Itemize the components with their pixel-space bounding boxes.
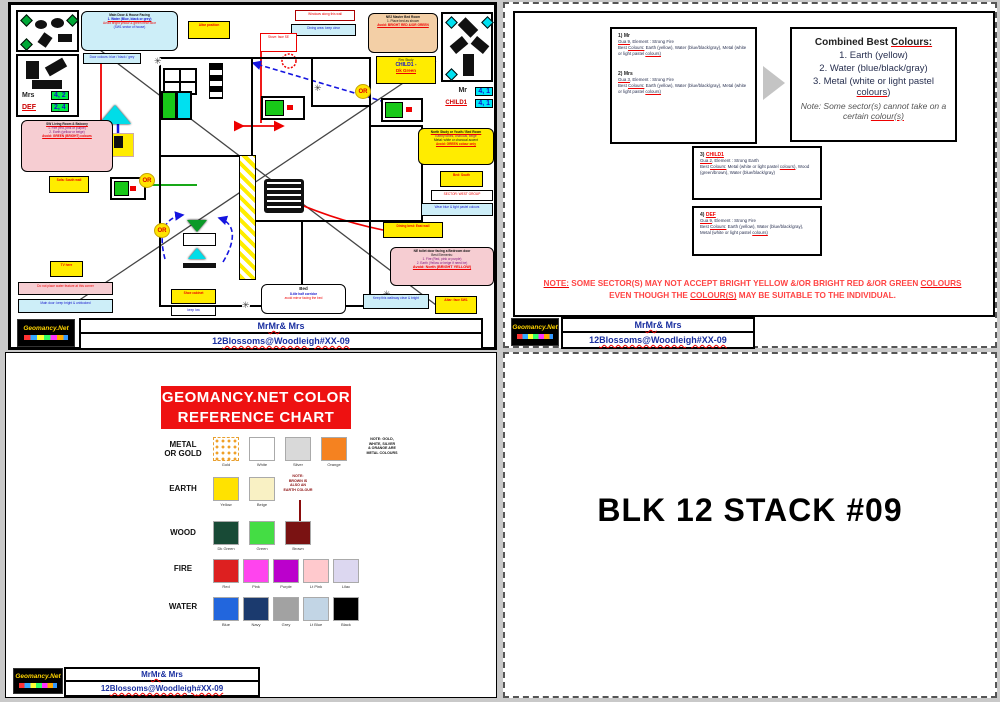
swatch-color [213,477,239,501]
gua-text: , Element : Strong Fire [712,218,756,223]
callout-master-bedroom: NE2 Master Bed Room 1. Place bed as show… [368,13,438,53]
callout-line: Altar position [190,23,228,27]
compass-diamond-icon [20,38,33,51]
swatch-color [285,521,311,545]
swatch: Silver [285,437,311,467]
callout-altar-sw: Altar: face SW1 [435,296,477,314]
geomancy-logo: Geomancy.Net [17,319,75,347]
note-text: MAY BE SUITABLE TO THE INDIVIDUAL. [737,291,896,300]
occupant-box-topright: Mr 4, 1 CHILD1 4, 1 [441,87,493,113]
compass-diamond-icon [445,16,458,29]
swatch-color [213,437,239,461]
logo-color-bar [24,335,69,340]
swatch-label: Lilac [342,584,350,589]
gua-text: , Element : Strong Fire [630,77,674,82]
callout-line: SECTOR: WEST GROUP [433,192,491,196]
callout-door-colours: Door colours: blue / black / grey [83,53,141,64]
callout-main-door-bright: Main door: keep bright & unblocked [18,299,113,313]
swatch: Lt Blue [303,597,329,627]
body-text: Metal (white or light pastel [726,164,779,169]
callout-line: Shoe cabinet [173,291,214,295]
callout-line: Avoid: North (BRIGHT YELLOW) [392,265,492,270]
swatch: Green [249,521,275,551]
swatch-row-metal: Gold White Silver Orange [213,437,347,467]
staircase-hatch [239,155,256,280]
threshold-bar [183,263,216,268]
body-text: colours) [645,89,661,94]
footer-text: 12 [589,335,599,345]
gua-text: Gua 9 [700,218,712,223]
gua-text: , Element : Strong Fire [630,39,674,44]
occupant-name: CHILD1 [445,100,467,106]
swatch-label: Red [222,584,229,589]
footer-address-box: Mr Mr & Mrs 12 Blossoms@Woodleigh #XX-09 [79,318,483,350]
callout-stove: Stove: face SE [260,33,297,52]
callout-line: keep low [173,308,214,312]
row-label-fire: FIRE [158,565,208,574]
logo-color-bar [19,683,57,688]
callout-line: Door colours: blue / black / grey [85,55,139,59]
swatch-color [285,437,311,461]
swatch-label: Black [341,622,351,627]
callout-main-door: Main Door & House Facing 1. Water (Blue,… [81,11,178,51]
compass-diamond-icon [66,14,79,27]
compass-diamond-icon [20,14,33,27]
callout-line: Do not place water feature at this corne… [20,284,111,288]
swatch-label: Lt Pink [310,584,322,589]
footer-text: & Mrs [656,320,681,330]
footer-text: #XX-09 [320,336,350,346]
kua-number-badge: 4, 1 [475,87,493,96]
body-text: colours) [752,230,768,235]
kua-number-badge: 4, 2 [51,91,69,100]
wall [369,125,423,127]
callout-line: Dining best: East wall [385,224,441,228]
sector-warning-note: NOTE: SOME SECTOR(S) MAY NOT ACCEPT BRIG… [530,278,975,303]
door-swing-icon: ✳ [154,57,162,66]
callout-wear-colours: Wear blue & light pastel colours [421,203,493,216]
body-text: colours) [645,51,661,56]
swatch: Navy [243,597,269,627]
callout-line: Altar: face SW1 [437,298,475,302]
swatch: Blue [213,597,239,627]
landing-box [183,233,216,246]
swatch-label: Blue [222,622,230,627]
geomancy-logo: Geomancy.Net [13,668,63,694]
combined-note: colour(s) [871,111,904,121]
fridge-icon [161,91,177,120]
footer-text: & Mrs [161,670,183,679]
geomancy-logo: Geomancy.Net [511,318,559,346]
callout-north-study: North Study or Youth / Bed Room Earthy t… [418,128,494,165]
best-colours-page: 1) Mr Gua 9, Element : Strong Fire Best … [503,2,997,348]
swatch-color [333,559,359,583]
callout-bed-corridor: Bed 8-tile half corridor avoid mirror fa… [261,284,346,314]
or-badge: OR [139,173,155,188]
gua-text: Gua 9 [618,39,630,44]
swatch: Gold [213,437,239,467]
person-box-def: 4) DEF Gua 9, Element : Strong Fire Best… [692,206,822,256]
footer-address-row: 12 Blossoms@Woodleigh #XX-09 [81,334,481,348]
wall [311,57,313,107]
wall [159,57,371,59]
kua-number-badge: 2, 4 [51,103,69,112]
callout-tv: TV here [50,261,83,277]
callout-line: Avoid: GREEN colour only [420,142,492,146]
body-text: Best [700,164,710,169]
footer-text: 12 [101,684,110,693]
wall [251,220,371,222]
swatch-label: Gold [222,462,230,467]
callout-line: Dk Green [378,68,434,74]
footer-text: Mr [151,670,161,679]
footer-address-row: 12 Blossoms@Woodleigh #XX-09 [563,333,753,347]
logo-color-bar [517,334,554,339]
swatch: Pink [243,559,269,589]
body-text: Best [618,45,628,50]
occupant-name: Mrs [22,92,34,99]
swatch: Black [333,597,359,627]
color-chart-page: GEOMANCY.NET COLOR REFERENCE CHART METAL… [5,352,497,698]
swatch-row-water: Blue Navy Grey Lt Blue Black [213,597,359,627]
swatch-color [273,559,299,583]
callout-line: avoid mirror facing the bed [263,296,344,300]
kua-number-badge: 4, 1 [475,99,493,108]
callout-line: TV here [52,263,81,267]
callout-altar: Altar position [188,21,230,39]
swatch-color [243,559,269,583]
swatch-label: Green [256,546,267,551]
dining-table-icon [264,179,304,213]
callout-line: Keep this walkway clear & bright [365,296,427,300]
compass-box-topright [441,12,493,82]
body-text: Colours: [628,45,644,50]
furniture-glyph [37,32,52,48]
swatch: Red [213,559,239,589]
callout-line: Avoid: BRIGHT RED &/OR GREEN [370,23,436,27]
callout-walkway: Keep this walkway clear & bright [363,294,429,309]
row-label-wood: WOOD [158,529,208,538]
swatch-color [213,521,239,545]
footer-text: Mr [141,670,151,679]
footer-address-box: Mr Mr & Mrs 12 Blossoms@Woodleigh #XX-09 [561,317,755,349]
combined-title: Colours: [891,37,932,48]
footer-address-box: Mr Mr & Mrs 12 Blossoms@Woodleigh #XX-09 [64,667,260,697]
swatch: Grey [273,597,299,627]
swatch-label: Grey [282,622,291,627]
furniture-glyph [26,61,39,79]
furniture-glyph [458,17,479,38]
footer-text: #XX-09 [197,684,224,693]
body-text: Colours: [710,224,726,229]
swatch-label: Navy [251,622,260,627]
callout-line: Bed: South [442,173,481,177]
combined-item: 1. Earth (yellow) [796,50,951,61]
row-label-earth: EARTH [158,485,208,494]
furniture-glyph [58,34,72,42]
furniture-glyph [463,54,474,76]
callout-line: Main door: keep bright & unblocked [20,301,111,305]
swatch: Brown [285,521,311,551]
furniture-glyph [471,36,490,54]
footer-name-row: Mr Mr & Mrs [81,320,481,334]
swatch: White [249,437,275,467]
wall [251,57,253,157]
callout-ne-toilet: NE toilet door facing a Bedroom door Bes… [390,247,494,286]
combined-item: 3. Metal (white or light pastel [813,76,934,87]
callout-dining: Dining area: keep clear [291,24,356,36]
callout-line: Wear blue & light pastel colours [423,205,491,209]
callout-keep-low: keep low [171,306,216,316]
callout-bed-south: Bed: South [440,171,483,187]
bed-icon [381,98,423,122]
door-swing-icon: ✳ [314,84,322,93]
swatch-color [303,559,329,583]
swatch-label: White [257,462,267,467]
swatch-color [249,521,275,545]
furniture-glyph [45,58,67,77]
wc-icon [114,136,123,148]
swatch: Dk Green [213,521,239,551]
floorplan-page: ✳ ✳ ✳ ✳ OR OR OR Mrs 4, 2 DEF 2, 4 Mr 4,… [8,2,497,350]
note-text: SOME SECTOR(S) MAY NOT ACCEPT BRIGHT YEL… [569,279,920,288]
body-text: Colours: [710,164,726,169]
swatch: Purple [273,559,299,589]
combined-item: colours [857,87,888,98]
callout-line: Windows along this wall [297,12,353,16]
footer-text: Mr [257,321,268,331]
or-badge: OR [355,84,371,99]
arrow-down-triangle [187,220,207,232]
bed-icon [261,96,305,120]
swatch-label: Beige [257,502,267,507]
furniture-glyph [35,20,47,29]
callout-sector-west: SECTOR: WEST GROUP [431,190,493,201]
document-canvas: { "footer": { "l1a": "Mr ", "l1b": "Mr",… [0,0,1000,702]
footer-name-row: Mr Mr & Mrs [563,319,753,333]
arrow-up-triangle-small [188,248,206,259]
furniture-glyph [450,36,469,54]
swatch-color [249,437,275,461]
note-text: COLOURS [921,279,962,288]
callout-line: Dining area: keep clear [293,26,354,30]
callout-dining-east: Dining best: East wall [383,222,443,238]
footer-text: Mr [634,320,645,330]
swatch-label: Purple [280,584,292,589]
callout-sw-living: SW Living Room & Balcony 1. Fire (red, p… [21,120,113,172]
swatch-color [321,437,347,461]
note-pointer-line [299,500,301,522]
compass-box-topleft [16,10,79,52]
swatch-row-wood: Dk Green Green Brown [213,521,311,551]
swatch-color [333,597,359,621]
callout-windows: Windows along this wall [295,10,355,21]
callout-child-room: Rm: Study CHILD1 - Dk Green [376,56,436,84]
swatch-color [303,597,329,621]
footer-address-row: 12 Blossoms@Woodleigh #XX-09 [66,682,258,695]
note-line: NOTE: SOME SECTOR(S) MAY NOT ACCEPT BRIG… [530,278,975,290]
row-label-metal: METAL OR GOLD [158,441,208,459]
swatch-label: Brown [292,546,303,551]
swatch-row-earth: Yellow Beige [213,477,275,507]
swatch-label: Silver [293,462,303,467]
swatch-color [273,597,299,621]
combined-colours-box: Combined Best Colours: 1. Earth (yellow)… [790,27,957,142]
door-swing-icon: ✳ [242,301,250,310]
footer-text: #XX-09 [697,335,727,345]
note-text: EVEN THOUGH THE [609,291,690,300]
swatch-color [243,597,269,621]
arrow-right-icon [763,66,785,100]
gua-text: , Element : Strong Earth [712,158,759,163]
callout-sofa: Sofa: South wall [49,176,89,193]
swatch-label: Orange [327,462,340,467]
callout-shoe-cabinet: Shoe cabinet [171,289,216,304]
callout-no-water-feature: Do not place water feature at this corne… [18,282,113,295]
window-column-icon [209,63,223,99]
callout-line: Sofa: South wall [51,178,87,182]
footer-text: Mr [645,320,656,330]
swatch: Lt Pink [303,559,329,589]
swatch-color [213,597,239,621]
footer-text: Blossoms@Woodleigh [222,336,320,346]
occupant-name: DEF [22,104,36,111]
person-box-mr-mrs: 1) Mr Gua 9, Element : Strong Fire Best … [610,27,757,144]
furniture-glyph [32,80,62,89]
swatch-label: Lt Blue [310,622,322,627]
gua-text: Gua 2 [700,158,712,163]
compass-diamond-icon [481,16,494,29]
footer-text: & Mrs [279,321,304,331]
gua-text: Gua 3 [618,77,630,82]
furniture-box-topleft: Mrs 4, 2 DEF 2, 4 [16,54,79,117]
footer-text: 12 [212,336,222,346]
footer-text: Mr [268,321,279,331]
chart-title-line: REFERENCE CHART [161,408,351,428]
body-text: Best [700,224,710,229]
cabinet-icon [176,91,192,120]
body-text: colours) [780,164,796,169]
body-text: Colours: [628,83,644,88]
swatch-color [213,559,239,583]
body-text: Best [618,83,628,88]
swatch-row-fire: Red Pink Purple Lt Pink Lilac [213,559,359,589]
combined-title: Combined Best [815,37,891,48]
or-badge: OR [154,223,170,238]
chart-title-box: GEOMANCY.NET COLOR REFERENCE CHART [161,386,351,429]
stack-title: BLK 12 STACK #09 [505,492,995,529]
occupant-name: Mr [458,87,467,94]
swatch-label: Yellow [220,502,231,507]
logo-text: Geomancy.Net [512,325,557,332]
chart-title-line: GEOMANCY.NET COLOR [161,388,351,408]
logo-text: Geomancy.Net [15,674,60,681]
compass-diamond-icon [445,68,458,81]
callout-line: Stove: face SE [262,35,295,39]
wall [311,105,371,107]
note-text: COLOUR(S) [690,291,736,300]
furniture-glyph [51,18,64,28]
callout-line: (SW1 sector of house) [83,25,176,29]
logo-text: Geomancy.Net [23,326,68,333]
row-label-water: WATER [158,603,208,612]
footer-name-row: Mr Mr & Mrs [66,669,258,682]
footer-text: Blossoms@Woodleigh [110,684,197,693]
combined-item: 2. Water (blue/black/gray) [796,63,951,74]
earth-note: NOTE: BROWN IS ALSO AN EARTH COLOUR [268,474,328,493]
combined-item: ) [887,87,890,98]
swatch: Yellow [213,477,239,507]
stack-title-page: BLK 12 STACK #09 [503,352,997,698]
swatch: Orange [321,437,347,467]
note-line: EVEN THOUGH THE COLOUR(S) MAY BE SUITABL… [530,290,975,302]
swatch-label: Dk Green [217,546,234,551]
footer-text: Blossoms@Woodleigh [599,335,697,345]
callout-line: Avoid: GREEN (BRIGHT) colours [23,134,111,138]
note-text: NOTE: [544,279,569,288]
swatch-label: Pink [252,584,260,589]
person-box-child1: 3) CHILD1 Gua 2, Element : Strong Earth … [692,146,822,200]
swatch: Lilac [333,559,359,589]
metal-note: NOTE: GOLD, WHITE, SILVER & ORANGE ARE M… [358,437,406,456]
